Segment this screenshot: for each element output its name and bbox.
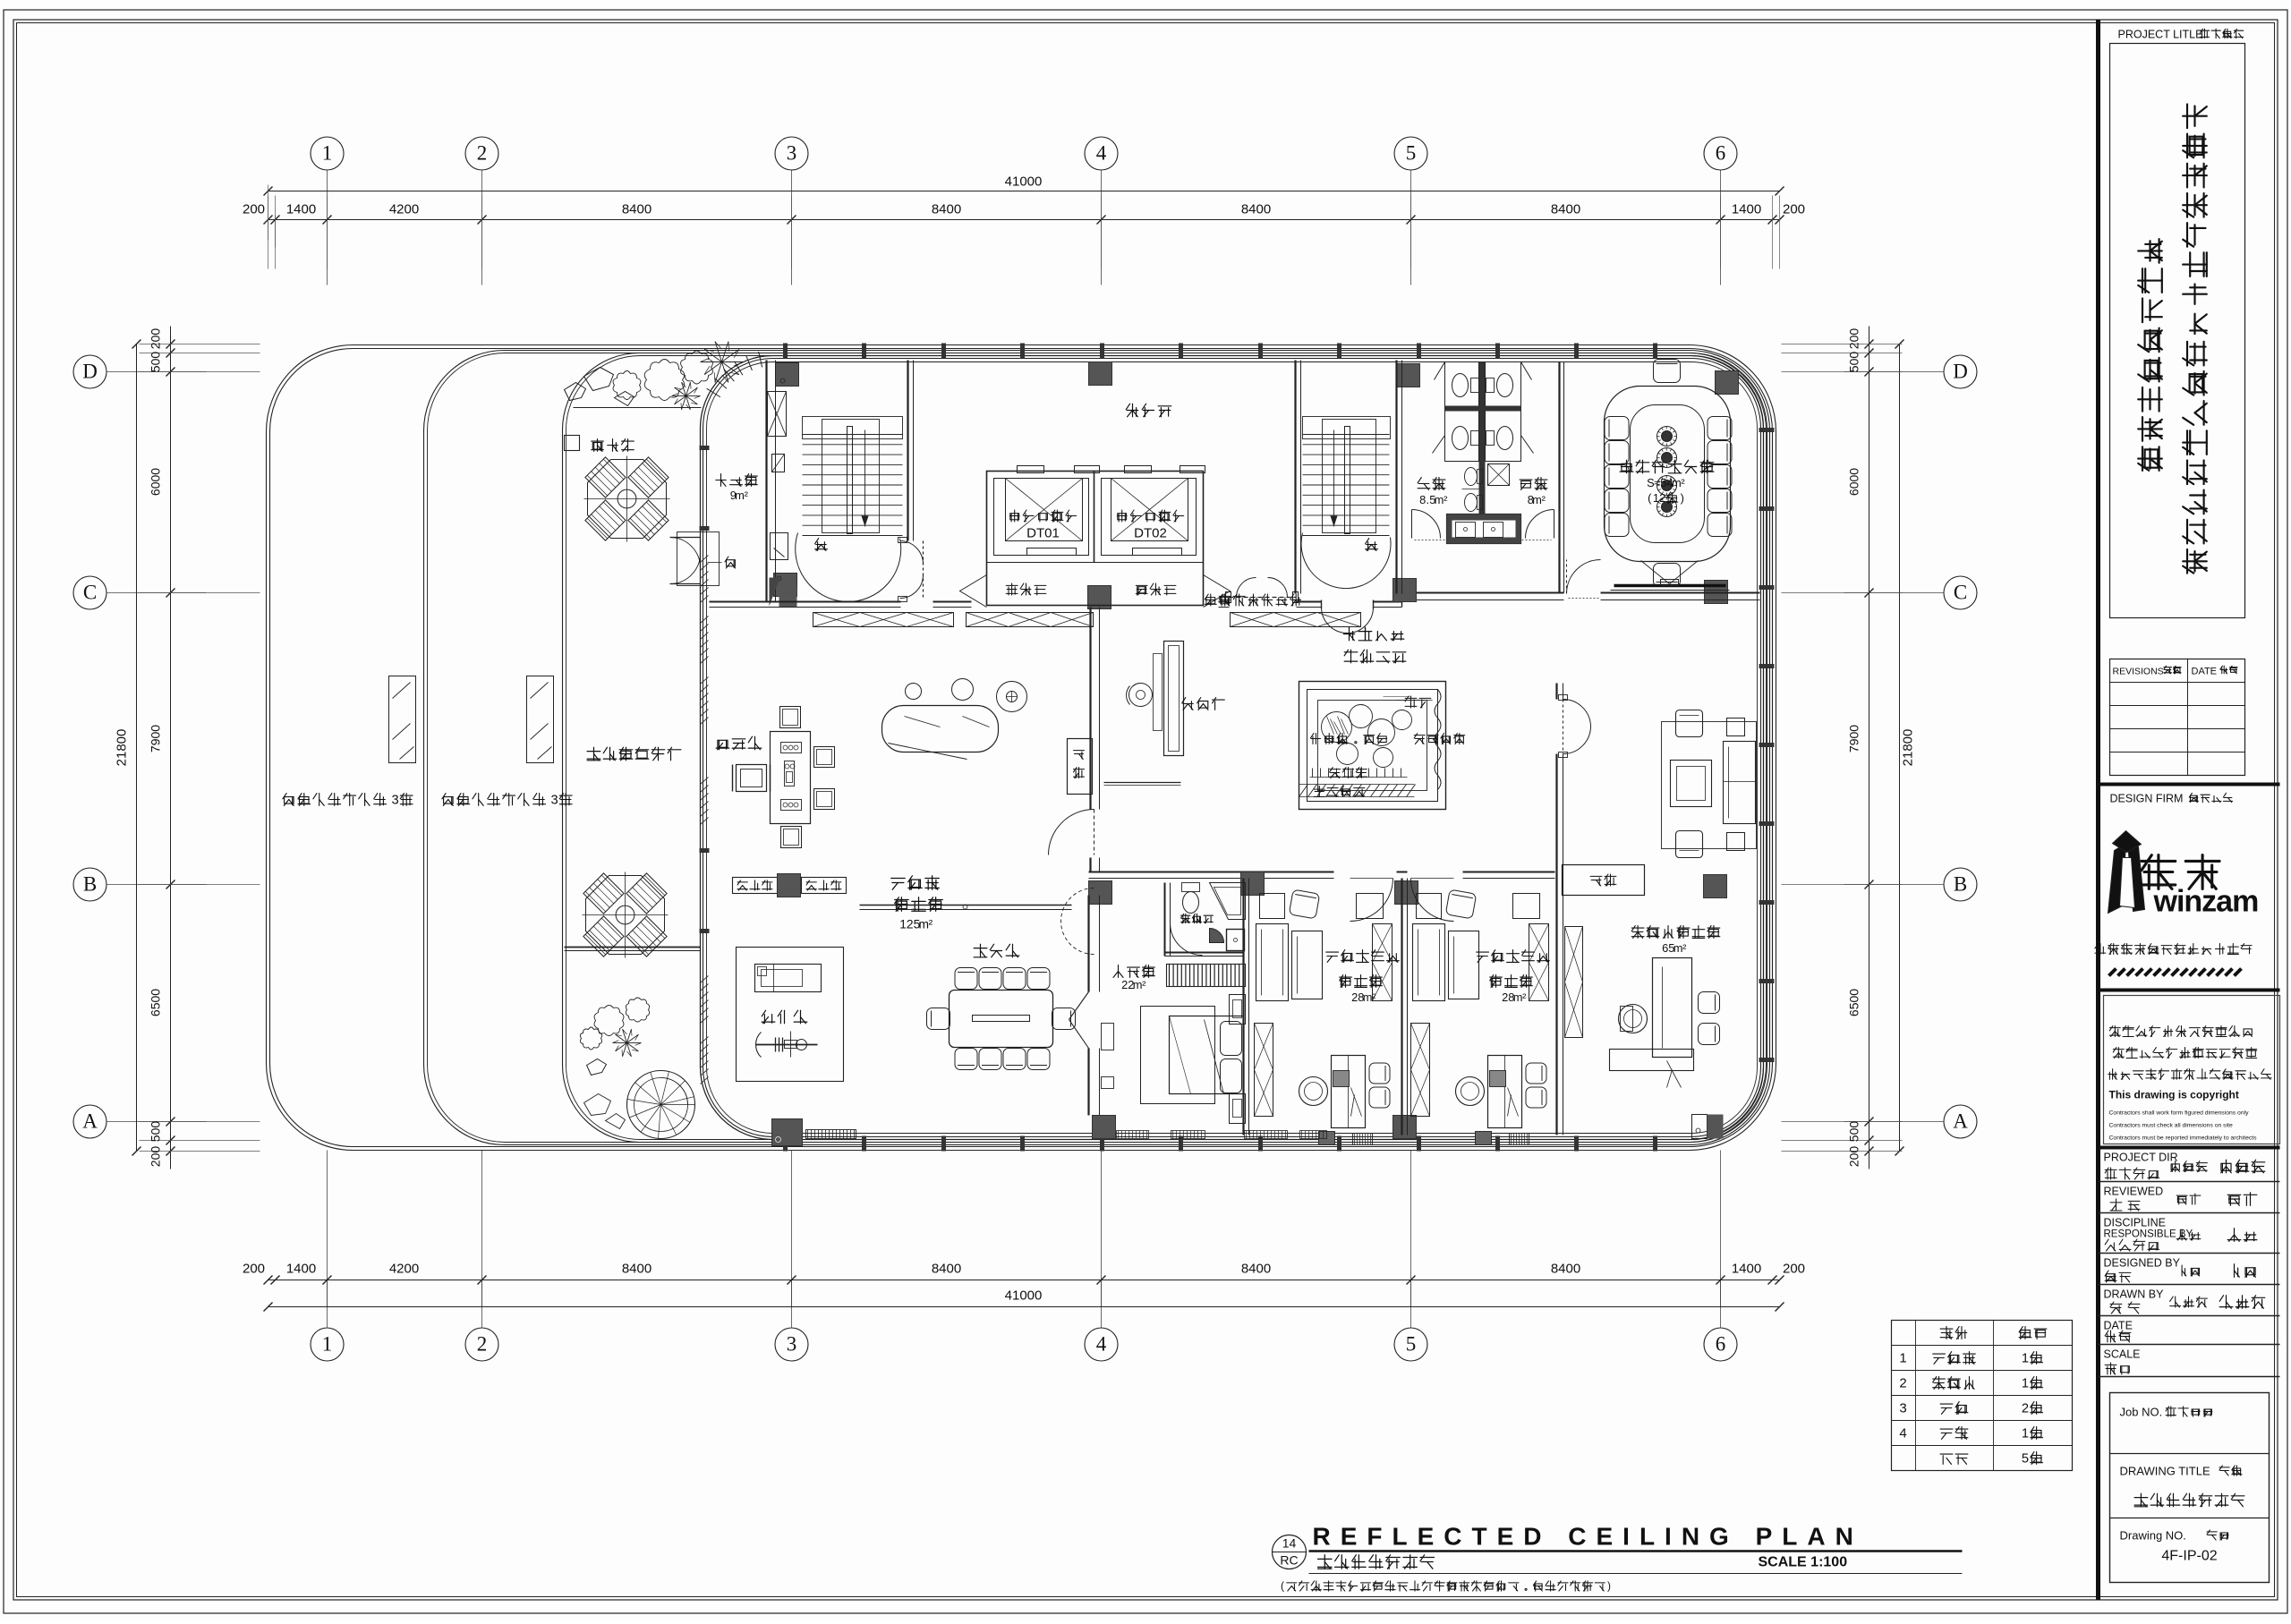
svg-text:1: 1 [322, 1333, 333, 1356]
svg-text:2: 2 [1659, 491, 1665, 505]
svg-text:m: m [1674, 941, 1683, 955]
svg-text:21800: 21800 [1901, 729, 1916, 767]
svg-text:500: 500 [1847, 352, 1861, 373]
svg-text:1: 1 [2022, 1352, 2029, 1366]
svg-text:B: B [83, 873, 97, 896]
svg-text:8400: 8400 [1551, 202, 1580, 217]
svg-text:5: 5 [1406, 1333, 1417, 1356]
svg-text:1: 1 [899, 917, 907, 931]
svg-text:3: 3 [391, 794, 398, 808]
svg-text:8400: 8400 [622, 202, 652, 217]
svg-text:200: 200 [149, 1146, 163, 1168]
svg-text:7900: 7900 [149, 725, 163, 752]
svg-text:D: D [82, 361, 98, 383]
svg-text:8400: 8400 [622, 1262, 652, 1277]
svg-text:4200: 4200 [389, 1262, 419, 1277]
svg-text:200: 200 [243, 202, 265, 217]
svg-text:5: 5 [1406, 142, 1417, 165]
svg-text:m: m [1513, 991, 1523, 1004]
svg-text:200: 200 [1783, 1262, 1805, 1277]
svg-text:DATE: DATE [2104, 1320, 2133, 1332]
svg-text:21800: 21800 [115, 729, 130, 767]
svg-text:6: 6 [1716, 1333, 1726, 1356]
svg-text:m: m [735, 489, 745, 502]
svg-text:8400: 8400 [1241, 1262, 1271, 1277]
svg-text:): ) [1681, 491, 1684, 505]
svg-text:): ) [1607, 1580, 1611, 1593]
svg-text:m: m [1363, 991, 1373, 1004]
svg-text:DATE: DATE [2192, 667, 2218, 677]
svg-text:Contractors shall work form fi: Contractors shall work form figured dime… [2109, 1110, 2250, 1117]
svg-text:winzam: winzam [2153, 885, 2259, 919]
svg-text:6000: 6000 [149, 468, 163, 496]
svg-text:500: 500 [1847, 1121, 1861, 1143]
svg-text:Contractors must check all dim: Contractors must check all dimensions on… [2109, 1123, 2233, 1129]
svg-text:DISCIPLINE: DISCIPLINE [2104, 1217, 2166, 1229]
svg-text:2: 2 [1121, 978, 1128, 991]
svg-text:m: m [1133, 978, 1143, 991]
svg-text:Job NO.: Job NO. [2120, 1406, 2163, 1419]
svg-text:6500: 6500 [149, 989, 163, 1016]
svg-text:200: 200 [149, 328, 163, 350]
svg-text:2: 2 [1351, 991, 1358, 1004]
svg-text:1400: 1400 [286, 1262, 316, 1277]
svg-text:2: 2 [2022, 1402, 2029, 1416]
svg-text:2: 2 [1502, 991, 1508, 1004]
svg-text:5: 5 [1660, 476, 1666, 489]
svg-text:4200: 4200 [389, 202, 419, 217]
svg-text:1: 1 [2022, 1377, 2029, 1391]
svg-text:4: 4 [1096, 1333, 1107, 1356]
svg-text:8400: 8400 [932, 1262, 961, 1277]
svg-text:2: 2 [477, 142, 488, 165]
svg-text:2: 2 [1899, 1376, 1906, 1391]
svg-text:²: ² [745, 489, 749, 502]
svg-text:m: m [918, 917, 929, 931]
svg-text:C: C [83, 582, 97, 604]
svg-text:A: A [82, 1110, 98, 1133]
svg-text:1400: 1400 [1732, 202, 1761, 217]
svg-text:²: ² [1682, 941, 1687, 955]
svg-text:(: ( [1281, 1580, 1284, 1593]
svg-text:SCALE: SCALE [2104, 1348, 2141, 1361]
svg-text:²: ² [1372, 991, 1376, 1004]
svg-text:4: 4 [1096, 142, 1107, 165]
svg-text:Drawing NO.: Drawing NO. [2120, 1529, 2186, 1543]
svg-text:m: m [1435, 493, 1444, 506]
svg-text:²: ² [1681, 476, 1685, 489]
svg-text:7900: 7900 [1847, 725, 1861, 752]
svg-text:RC: RC [1280, 1553, 1298, 1568]
svg-text:REVISIONS: REVISIONS [2113, 667, 2164, 677]
svg-text:1400: 1400 [1732, 1262, 1761, 1277]
svg-text:8400: 8400 [1241, 202, 1271, 217]
svg-text:REVIEWED: REVIEWED [2104, 1186, 2164, 1198]
svg-text:200: 200 [1783, 202, 1805, 217]
svg-text:200: 200 [1847, 328, 1861, 350]
svg-text:2: 2 [477, 1333, 488, 1356]
svg-text:6000: 6000 [1847, 468, 1861, 496]
svg-text:DT01: DT01 [1026, 526, 1060, 541]
svg-text:14: 14 [1282, 1536, 1297, 1551]
svg-text:²: ² [1522, 991, 1527, 1004]
svg-text:41000: 41000 [1005, 1288, 1043, 1304]
svg-text:4F-IP-02: 4F-IP-02 [2161, 1549, 2217, 1564]
svg-text:200: 200 [1847, 1146, 1861, 1168]
svg-text:²: ² [1542, 493, 1546, 506]
svg-text:(: ( [1648, 491, 1652, 505]
svg-text:500: 500 [149, 1121, 163, 1143]
svg-text:m: m [1672, 476, 1682, 489]
svg-text:200: 200 [243, 1262, 265, 1277]
svg-text:REFLECTED CEILING PLAN: REFLECTED CEILING PLAN [1313, 1523, 1863, 1551]
svg-text:3: 3 [787, 1333, 797, 1356]
svg-text:1: 1 [1899, 1351, 1906, 1366]
svg-text:4: 4 [1899, 1426, 1906, 1441]
svg-text:DT02: DT02 [1134, 526, 1167, 541]
svg-text:1: 1 [2022, 1427, 2029, 1441]
svg-text:1400: 1400 [286, 202, 316, 217]
svg-text:1: 1 [322, 142, 333, 165]
svg-text:1: 1 [1653, 491, 1659, 505]
svg-text:8400: 8400 [932, 202, 961, 217]
svg-text:5: 5 [2022, 1452, 2029, 1467]
svg-text:C: C [1954, 582, 1967, 604]
svg-text:3: 3 [550, 794, 558, 808]
svg-text:A: A [1953, 1110, 1968, 1133]
svg-text:m: m [1532, 493, 1542, 506]
svg-text:²: ² [1142, 978, 1146, 991]
svg-text:6: 6 [1716, 142, 1726, 165]
svg-text:3: 3 [787, 142, 797, 165]
svg-text:PROJECT DIR: PROJECT DIR [2104, 1152, 2178, 1164]
svg-text:This drawing is copyright: This drawing is copyright [2109, 1089, 2239, 1101]
svg-text:D: D [1953, 361, 1968, 383]
svg-text:Contractors must be reported i: Contractors must be reported immediately… [2109, 1135, 2258, 1142]
svg-text:B: B [1954, 873, 1967, 896]
svg-text:8400: 8400 [1551, 1262, 1580, 1277]
svg-text:DRAWING TITLE: DRAWING TITLE [2120, 1465, 2210, 1478]
svg-text:DESIGNED BY: DESIGNED BY [2104, 1257, 2181, 1270]
svg-text:6500: 6500 [1847, 989, 1861, 1016]
svg-text:²: ² [929, 917, 933, 931]
svg-text:3: 3 [1899, 1401, 1906, 1416]
svg-text:41000: 41000 [1005, 174, 1043, 190]
svg-text:6: 6 [1662, 941, 1668, 955]
svg-text:PROJECT LITLE: PROJECT LITLE [2118, 29, 2203, 41]
svg-text:2: 2 [907, 917, 914, 931]
svg-text:8: 8 [1419, 493, 1426, 506]
svg-text:DRAWN BY: DRAWN BY [2104, 1288, 2165, 1301]
svg-text:DESIGN FIRM: DESIGN FIRM [2110, 793, 2184, 805]
svg-text:²: ² [1444, 493, 1448, 506]
svg-text:≈: ≈ [1654, 476, 1660, 489]
svg-text:500: 500 [149, 352, 163, 373]
svg-text:SCALE 1:100: SCALE 1:100 [1759, 1555, 1848, 1570]
